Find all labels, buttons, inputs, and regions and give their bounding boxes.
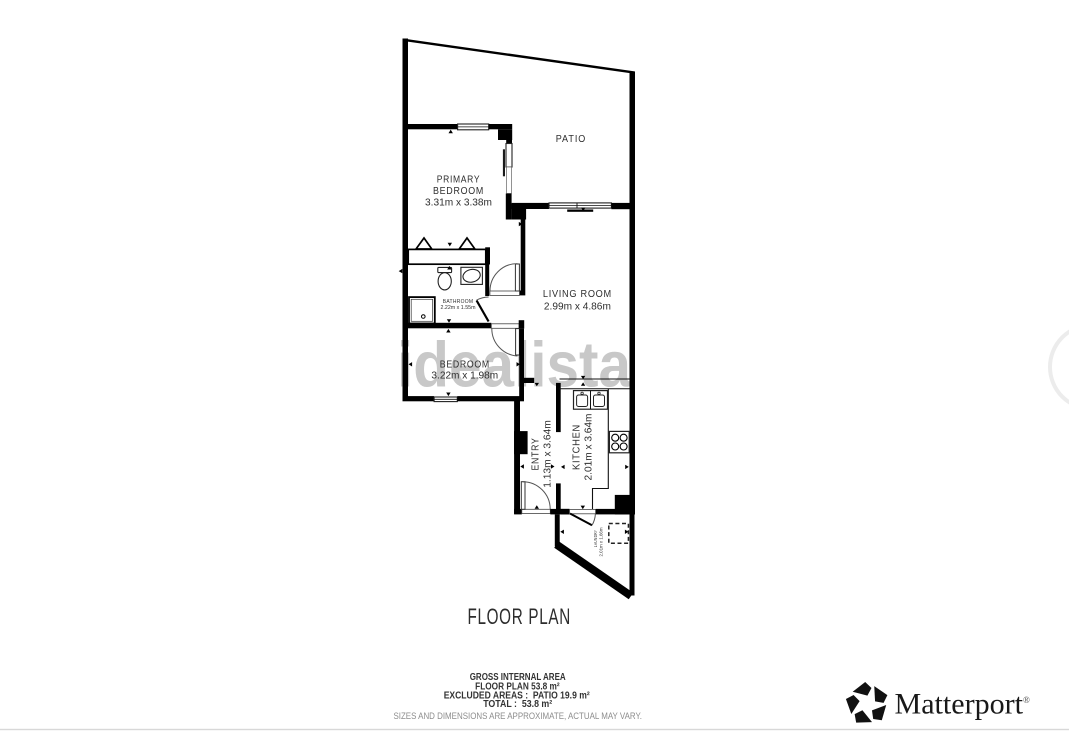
svg-text:KITCHEN: KITCHEN bbox=[572, 424, 583, 470]
svg-text:TOTAL : 53.8 m²: TOTAL : 53.8 m² bbox=[483, 699, 553, 710]
svg-text:2.99m x 4.86m: 2.99m x 4.86m bbox=[544, 301, 611, 312]
svg-text:2.01m x 1.66m: 2.01m x 1.66m bbox=[599, 527, 604, 556]
svg-text:BEDROOM: BEDROOM bbox=[433, 186, 484, 197]
svg-text:3.31m x 3.38m: 3.31m x 3.38m bbox=[425, 198, 492, 209]
svg-text:3.22m x 1.98m: 3.22m x 1.98m bbox=[431, 371, 498, 382]
svg-text:®: ® bbox=[1023, 695, 1030, 705]
svg-text:BEDROOM: BEDROOM bbox=[440, 358, 490, 370]
svg-text:LAUNDRY: LAUNDRY bbox=[593, 529, 598, 547]
svg-text:2.01m x 3.64m: 2.01m x 3.64m bbox=[584, 414, 595, 481]
svg-text:2.22m x 1.55m: 2.22m x 1.55m bbox=[441, 305, 476, 311]
svg-text:idealista: idealista bbox=[397, 329, 631, 401]
svg-text:Matterport: Matterport bbox=[895, 688, 1024, 721]
svg-text:PATIO: PATIO bbox=[556, 133, 587, 145]
svg-text:FLOOR PLAN: FLOOR PLAN bbox=[467, 604, 571, 629]
svg-text:PRIMARY: PRIMARY bbox=[437, 174, 481, 185]
svg-text:SIZES AND DIMENSIONS ARE APPRO: SIZES AND DIMENSIONS ARE APPROXIMATE, AC… bbox=[393, 711, 642, 721]
svg-text:1.13m x 3.64m: 1.13m x 3.64m bbox=[542, 420, 553, 488]
svg-text:LIVING ROOM: LIVING ROOM bbox=[543, 288, 612, 300]
svg-text:ENTRY: ENTRY bbox=[531, 438, 542, 471]
